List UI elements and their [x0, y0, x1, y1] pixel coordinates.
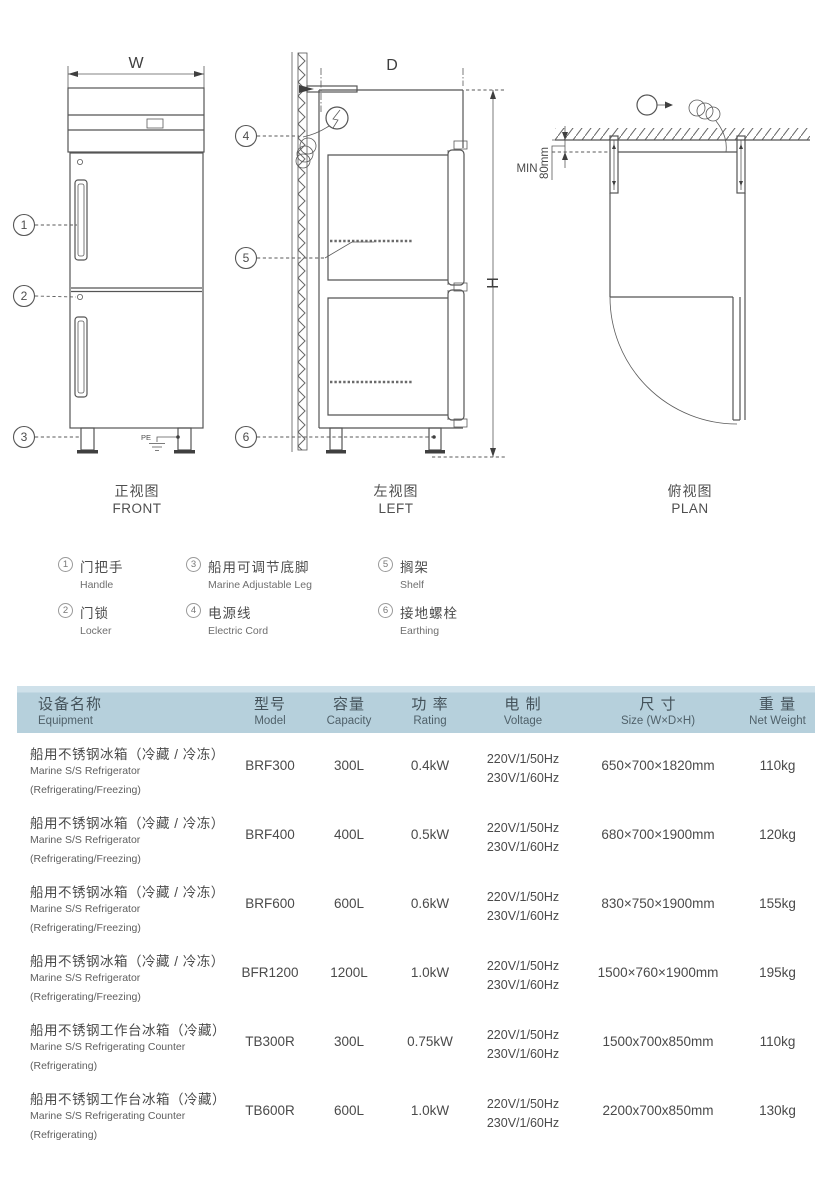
spec-table: 设备名称 Equipment 型号 Model 容量 Capacity 功 率 … [17, 686, 815, 1157]
plan-wall-hatch [555, 128, 810, 140]
voltage-cell: 220V/1/50Hz 230V/1/60Hz [470, 1019, 576, 1088]
clearance-label: 80mm [539, 147, 551, 179]
legend-number: 1 [58, 557, 73, 572]
table-body: 船用不锈钢冰箱（冷藏 / 冷冻） Marine S/S Refrigerator… [17, 743, 815, 1157]
model-cell: TB300R [232, 1019, 308, 1088]
legend-label-zh: 搁架 [400, 556, 429, 576]
callout-6-earthing: 6 [236, 427, 436, 448]
legend-label-en: Locker [80, 625, 112, 637]
legend: 1 门把手Handle 2 门锁Locker 3 船用可调节底脚Marine A… [58, 556, 618, 640]
model-cell: BRF400 [232, 812, 308, 881]
door-swing-arc [610, 297, 737, 424]
weight-cell: 120kg [740, 812, 815, 881]
legend-label-en: Marine Adjustable Leg [208, 579, 312, 591]
table-row: 船用不锈钢冰箱（冷藏 / 冷冻） Marine S/S Refrigerator… [17, 950, 815, 1019]
left-view: D [236, 52, 508, 516]
left-caption-en: LEFT [378, 501, 413, 516]
table-row: 船用不锈钢冰箱（冷藏 / 冷冻） Marine S/S Refrigerator… [17, 812, 815, 881]
plan-caption-en: PLAN [671, 501, 708, 516]
technical-drawings: W [0, 40, 830, 520]
depth-dim-label: D [386, 57, 398, 74]
voltage-cell: 220V/1/50Hz 230V/1/60Hz [470, 743, 576, 812]
equipment-cell: 船用不锈钢工作台冰箱（冷藏） Marine S/S Refrigerating … [17, 1088, 232, 1157]
svg-text:1: 1 [21, 218, 28, 232]
svg-text:4: 4 [243, 129, 250, 143]
weight-cell: 110kg [740, 743, 815, 812]
voltage-cell: 220V/1/50Hz 230V/1/60Hz [470, 881, 576, 950]
size-cell: 830×750×1900mm [576, 881, 740, 950]
rating-cell: 1.0kW [390, 1088, 470, 1157]
size-cell: 680×700×1900mm [576, 812, 740, 881]
equipment-cell: 船用不锈钢工作台冰箱（冷藏） Marine S/S Refrigerating … [17, 1019, 232, 1088]
legend-number: 4 [186, 603, 201, 618]
legend-item-shelf: 5 搁架Shelf [378, 556, 458, 591]
legend-label-zh: 门锁 [80, 602, 112, 622]
callout-3-leg: 3 [14, 427, 81, 448]
table-row: 船用不锈钢工作台冰箱（冷藏） Marine S/S Refrigerating … [17, 1088, 815, 1157]
model-cell: BFR1200 [232, 950, 308, 1019]
size-cell: 650×700×1820mm [576, 743, 740, 812]
capacity-cell: 400L [308, 812, 390, 881]
size-cell: 1500x700x850mm [576, 1019, 740, 1088]
capacity-cell: 300L [308, 1019, 390, 1088]
callout-5-shelf: 5 [236, 248, 326, 269]
equipment-cell: 船用不锈钢冰箱（冷藏 / 冷冻） Marine S/S Refrigerator… [17, 881, 232, 950]
front-view: W [14, 55, 205, 516]
min-label: MIN [516, 163, 537, 175]
weight-cell: 110kg [740, 1019, 815, 1088]
rating-cell: 0.75kW [390, 1019, 470, 1088]
legend-item-adjustable-leg: 3 船用可调节底脚Marine Adjustable Leg [186, 556, 312, 591]
voltage-cell: 220V/1/50Hz 230V/1/60Hz [470, 812, 576, 881]
header-capacity: 容量 Capacity [308, 693, 390, 727]
rating-cell: 0.6kW [390, 881, 470, 950]
open-door [733, 297, 740, 420]
legend-item-handle: 1 门把手Handle [58, 556, 124, 591]
height-dim-label: H [485, 277, 502, 289]
equipment-cell: 船用不锈钢冰箱（冷藏 / 冷冻） Marine S/S Refrigerator… [17, 743, 232, 812]
legend-number: 2 [58, 603, 73, 618]
equipment-cell: 船用不锈钢冰箱（冷藏 / 冷冻） Marine S/S Refrigerator… [17, 950, 232, 1019]
legend-column-3: 5 搁架Shelf 6 接地螺栓Earthing [378, 556, 458, 648]
rating-cell: 1.0kW [390, 950, 470, 1019]
legend-item-electric-cord: 4 电源线Electric Cord [186, 602, 312, 637]
front-caption-zh: 正视图 [115, 483, 160, 499]
table-row: 船用不锈钢工作台冰箱（冷藏） Marine S/S Refrigerating … [17, 1019, 815, 1088]
plan-cabinet-outline [552, 136, 745, 424]
header-equipment: 设备名称 Equipment [17, 693, 232, 727]
model-cell: BRF600 [232, 881, 308, 950]
header-size: 尺 寸 Size (W×D×H) [576, 693, 740, 727]
door-handle-upper [75, 180, 87, 260]
legend-item-earthing: 6 接地螺栓Earthing [378, 602, 458, 637]
legend-label-en: Shelf [400, 579, 429, 591]
capacity-cell: 1200L [308, 950, 390, 1019]
front-legs [77, 428, 195, 454]
plan-plug-icon [637, 95, 673, 115]
width-dimension: W [68, 55, 204, 88]
legend-column-2: 3 船用可调节底脚Marine Adjustable Leg 4 电源线Elec… [186, 556, 312, 648]
svg-text:2: 2 [21, 289, 28, 303]
table-row: 船用不锈钢冰箱（冷藏 / 冷冻） Marine S/S Refrigerator… [17, 743, 815, 812]
width-dim-label: W [128, 55, 144, 72]
front-caption-en: FRONT [113, 501, 162, 516]
svg-text:5: 5 [243, 251, 250, 265]
datasheet-page: W [0, 0, 830, 1186]
legend-label-en: Handle [80, 579, 124, 591]
voltage-cell: 220V/1/50Hz 230V/1/60Hz [470, 1088, 576, 1157]
legend-label-en: Electric Cord [208, 625, 268, 637]
side-door-lower [448, 290, 464, 420]
height-dimension: H [432, 90, 507, 457]
plan-view: MIN 80mm 俯视图 PLAN [516, 95, 810, 516]
equipment-cell: 船用不锈钢冰箱（冷藏 / 冷冻） Marine S/S Refrigerator… [17, 812, 232, 881]
table-header: 设备名称 Equipment 型号 Model 容量 Capacity 功 率 … [17, 686, 815, 733]
legend-number: 5 [378, 557, 393, 572]
header-model: 型号 Model [232, 693, 308, 727]
capacity-cell: 600L [308, 881, 390, 950]
wall-bracket [299, 85, 357, 93]
power-plug-icon [303, 107, 348, 137]
callout-4-cord: 4 [236, 126, 300, 147]
door-handle-lower [75, 317, 87, 397]
rating-cell: 0.4kW [390, 743, 470, 812]
size-cell: 2200x700x850mm [576, 1088, 740, 1157]
plan-caption-zh: 俯视图 [668, 483, 713, 499]
plan-cord-coil-icon [689, 100, 726, 152]
hinge-top [454, 141, 467, 149]
model-cell: TB600R [232, 1088, 308, 1157]
callout-1-handle: 1 [14, 215, 78, 236]
left-cabinet-outline [319, 90, 467, 454]
voltage-cell: 220V/1/50Hz 230V/1/60Hz [470, 950, 576, 1019]
side-door-upper [448, 150, 464, 285]
rating-cell: 0.5kW [390, 812, 470, 881]
legend-item-locker: 2 门锁Locker [58, 602, 124, 637]
header-rating: 功 率 Rating [390, 693, 470, 727]
legend-number: 6 [378, 603, 393, 618]
bulkhead-wall [292, 52, 307, 452]
legend-label-zh: 门把手 [80, 556, 124, 576]
pe-label: PE [141, 433, 151, 442]
weight-cell: 195kg [740, 950, 815, 1019]
door-lock-lower [77, 294, 82, 299]
svg-text:6: 6 [243, 430, 250, 444]
callout-2-locker: 2 [14, 286, 77, 307]
legend-label-zh: 船用可调节底脚 [208, 556, 312, 576]
earth-ground-icon: PE [141, 433, 180, 451]
weight-cell: 155kg [740, 881, 815, 950]
legend-label-zh: 电源线 [208, 602, 268, 622]
header-net-weight: 重 量 Net Weight [740, 693, 815, 727]
header-voltage: 电 制 Voltage [470, 693, 576, 727]
front-cabinet-outline: PE [68, 88, 204, 454]
legend-number: 3 [186, 557, 201, 572]
left-caption-zh: 左视图 [374, 483, 419, 499]
legend-label-zh: 接地螺栓 [400, 602, 458, 622]
size-cell: 1500×760×1900mm [576, 950, 740, 1019]
svg-text:3: 3 [21, 430, 28, 444]
legend-column-1: 1 门把手Handle 2 门锁Locker [58, 556, 124, 648]
legend-label-en: Earthing [400, 625, 458, 637]
capacity-cell: 300L [308, 743, 390, 812]
table-row: 船用不锈钢冰箱（冷藏 / 冷冻） Marine S/S Refrigerator… [17, 881, 815, 950]
left-legs [326, 428, 445, 454]
weight-cell: 130kg [740, 1088, 815, 1157]
door-lock-upper [77, 159, 82, 164]
control-display [147, 119, 163, 128]
capacity-cell: 600L [308, 1088, 390, 1157]
model-cell: BRF300 [232, 743, 308, 812]
